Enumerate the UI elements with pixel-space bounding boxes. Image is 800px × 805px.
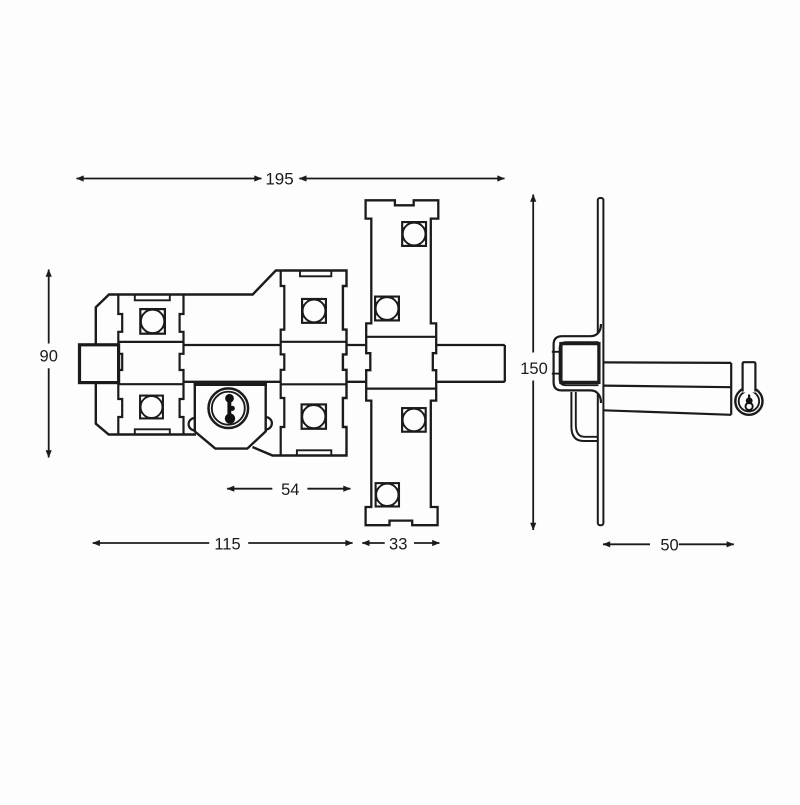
svg-text:50: 50: [660, 536, 678, 554]
svg-text:90: 90: [40, 348, 58, 366]
svg-text:33: 33: [389, 535, 407, 553]
svg-text:115: 115: [214, 535, 240, 553]
svg-text:150: 150: [520, 360, 548, 378]
svg-text:195: 195: [265, 170, 293, 189]
svg-text:54: 54: [281, 481, 299, 499]
